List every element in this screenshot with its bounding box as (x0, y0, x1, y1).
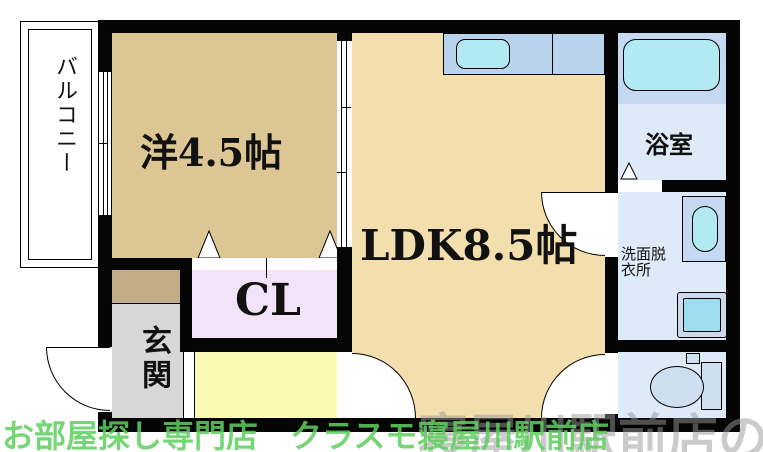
entrance-step (112, 270, 183, 304)
wall-right (726, 20, 740, 432)
wall-washroom-toilet (605, 340, 740, 352)
toilet-button (686, 353, 700, 364)
entrance-hall-step-line (183, 352, 195, 418)
wall-left (98, 215, 112, 347)
balcony-label: バルコニー (48, 55, 80, 245)
washing-machine (683, 298, 721, 332)
sliding-door-tick (337, 172, 346, 173)
sliding-door-partition (337, 33, 352, 247)
wall-western-entrance (98, 258, 192, 270)
wall-left (98, 20, 112, 72)
vanity-basin (692, 206, 718, 252)
ldk-label: LDK8.5帖 (360, 212, 578, 273)
wall-closet-right (337, 247, 352, 352)
hallway-ldk-door-opening (337, 352, 352, 415)
door-swing-arc-entrance (46, 347, 110, 411)
wall-bath-washroom (662, 180, 740, 192)
sliding-door-tick (342, 107, 351, 108)
watermark-shop-green: お部屋探し専門店 クラスモ寝屋川駅前店 (2, 411, 609, 452)
bathroom-door-opening (618, 180, 662, 192)
entrance-label: 玄関 (131, 325, 175, 405)
bathroom-label: 浴室 (645, 125, 693, 160)
floor-plan: バルコニー 洋4.5帖 LDK8.5帖 浴室 洗面脱 衣所 CL 玄関 寝屋川駅… (0, 0, 763, 452)
wall-top (98, 20, 740, 33)
kitchen-counter-divider (552, 34, 553, 74)
bathtub (623, 39, 720, 91)
wall-right-column (605, 20, 618, 192)
kitchen-sink (456, 39, 510, 69)
closet-opening (192, 258, 337, 270)
wall-right-column (605, 258, 618, 352)
washroom-door-opening (605, 192, 618, 258)
washroom-label-line2: 衣所 (621, 262, 666, 278)
closet-label: CL (235, 275, 301, 326)
hallway-floor (195, 352, 337, 418)
wall-closet-bottom (180, 338, 352, 352)
washroom-label-line1: 洗面脱 (621, 246, 666, 262)
window-tick (98, 143, 108, 144)
washroom-label: 洗面脱 衣所 (621, 246, 666, 278)
wall-partition-stub (337, 33, 352, 41)
bathroom-door-symbol (620, 162, 638, 180)
closet-folding-door-symbol (197, 230, 221, 259)
sliding-door-track-line (341, 33, 342, 247)
western-room-label: 洋4.5帖 (140, 122, 282, 177)
sliding-door-track-line (346, 33, 347, 247)
